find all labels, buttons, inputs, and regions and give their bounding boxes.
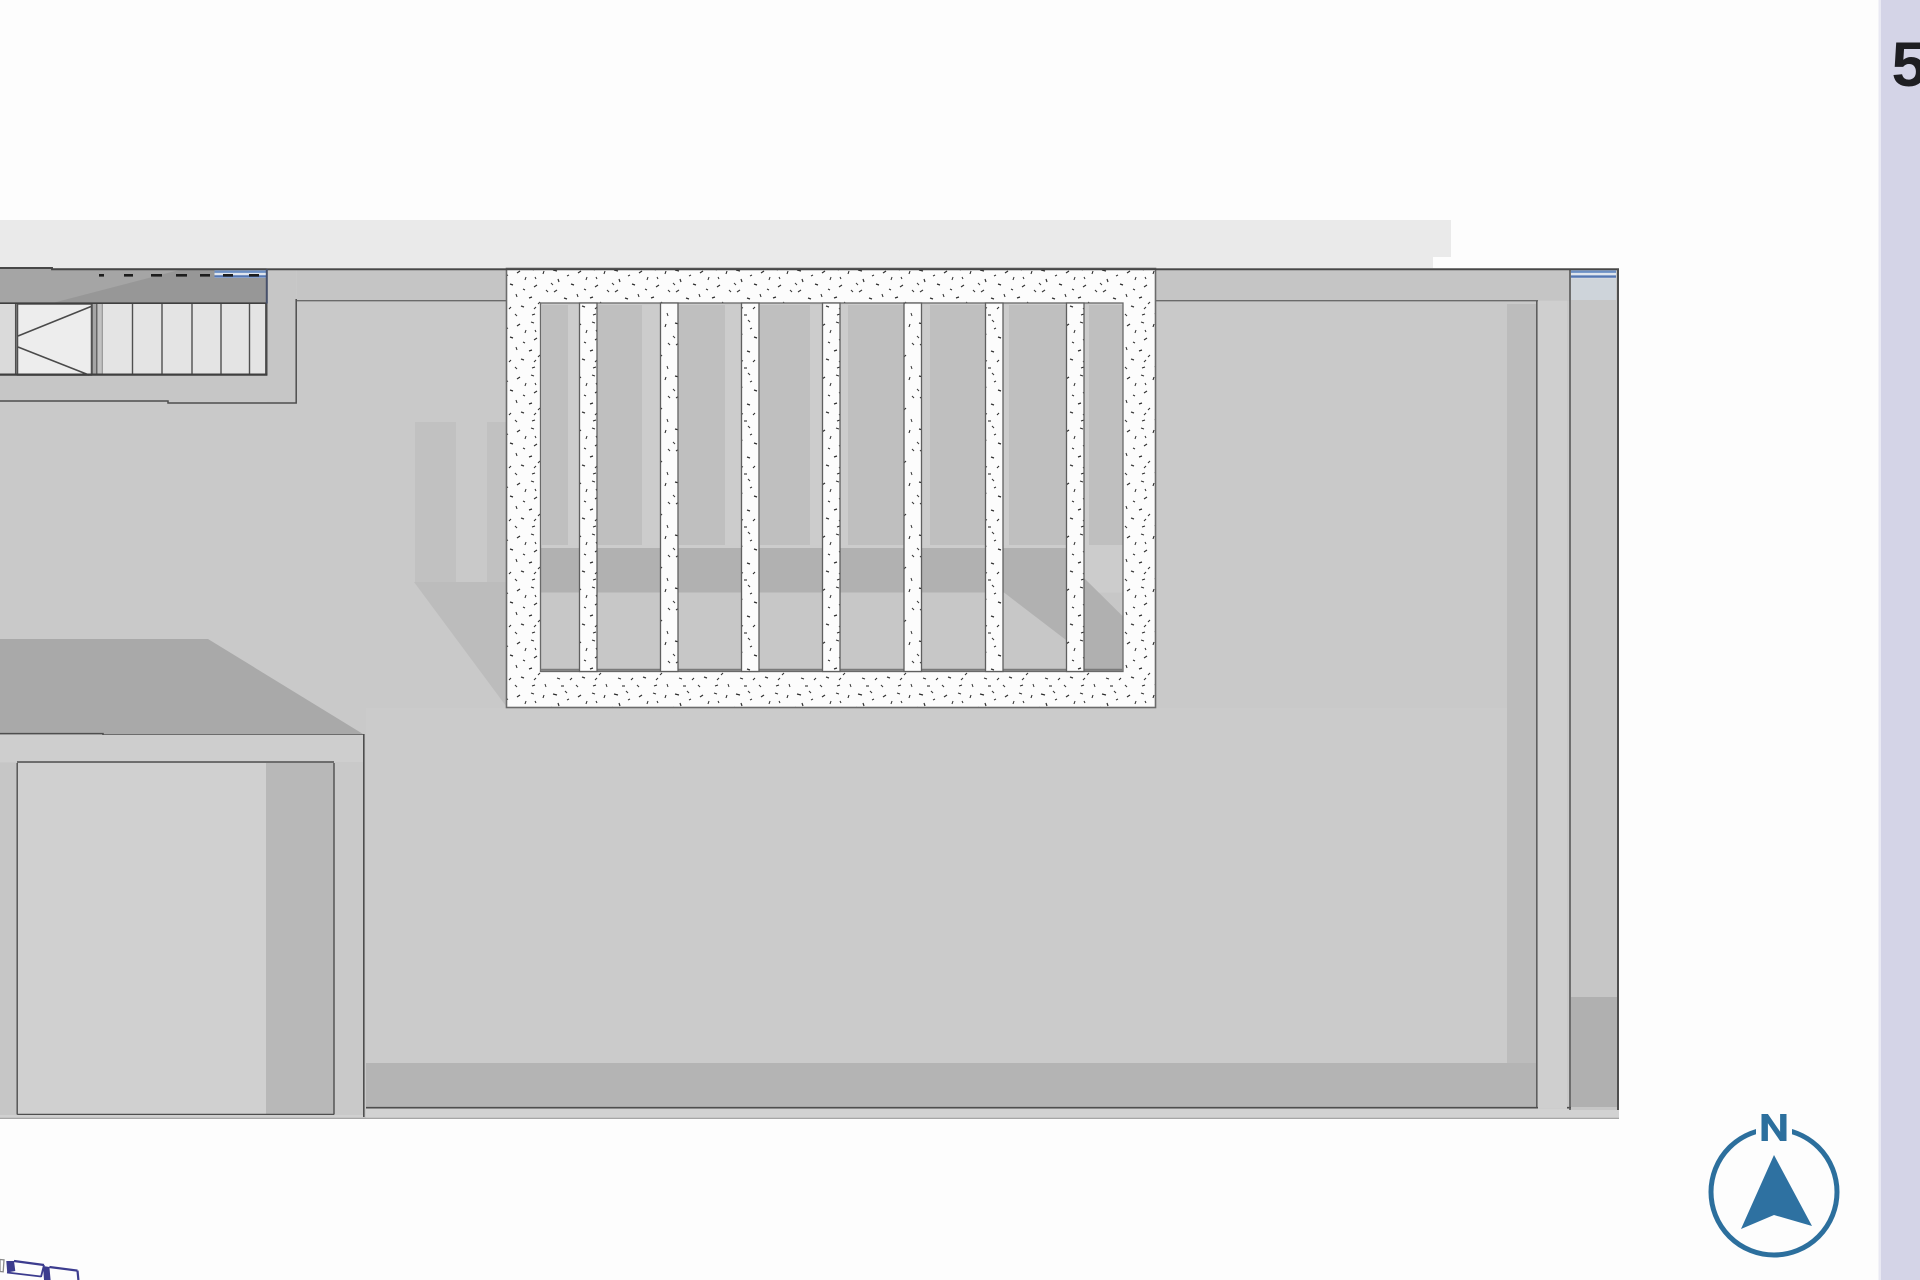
svg-text:5: 5: [1891, 30, 1920, 100]
